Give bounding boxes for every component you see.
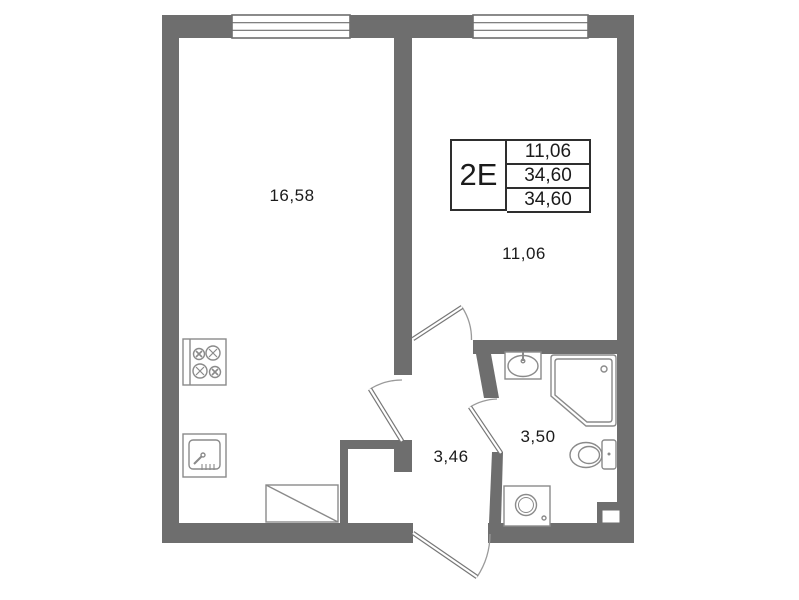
washbasin-icon — [505, 352, 541, 379]
bedroom-door-icon — [413, 307, 472, 340]
stove-icon — [183, 339, 226, 385]
kitchen-fixtures — [183, 339, 338, 522]
wall — [340, 440, 348, 523]
wall — [350, 15, 473, 38]
unit-info-table: 2Е 11,06 34,60 34,60 — [450, 139, 591, 211]
vent-shaft-opening — [602, 510, 620, 523]
wall — [476, 354, 499, 398]
kitchen-sink-icon — [183, 434, 226, 477]
floor-plan-canvas: 16,58 11,06 3,46 3,50 2Е 11,06 34,60 34,… — [0, 0, 799, 600]
wall — [617, 15, 634, 543]
unit-living-area: 11,06 — [507, 139, 591, 165]
living-room-area-label: 16,58 — [269, 186, 314, 206]
unit-overall-area: 34,60 — [507, 189, 591, 213]
window-icon — [473, 15, 588, 38]
wall — [489, 452, 503, 523]
bedroom-area-label: 11,06 — [502, 244, 546, 264]
wall — [473, 340, 617, 354]
wall — [162, 523, 413, 543]
floor-plan-drawing — [0, 0, 799, 600]
unit-type-label: 2Е — [450, 139, 507, 211]
wall — [394, 38, 412, 375]
unit-areas: 11,06 34,60 34,60 — [507, 139, 591, 211]
wall — [394, 440, 412, 472]
living-door-icon — [370, 380, 402, 441]
wall — [162, 15, 179, 543]
window-icon — [232, 15, 350, 38]
hall-area-label: 3,46 — [433, 447, 468, 467]
shower-icon — [551, 355, 616, 426]
washing-machine-icon — [504, 486, 550, 526]
walls — [162, 15, 634, 543]
wardrobe-icon — [266, 485, 338, 522]
entrance-door-icon — [413, 533, 490, 577]
bathroom-door-icon — [470, 399, 501, 453]
bathroom-area-label: 3,50 — [520, 427, 555, 447]
toilet-icon — [570, 440, 616, 469]
unit-total-area: 34,60 — [507, 165, 591, 189]
